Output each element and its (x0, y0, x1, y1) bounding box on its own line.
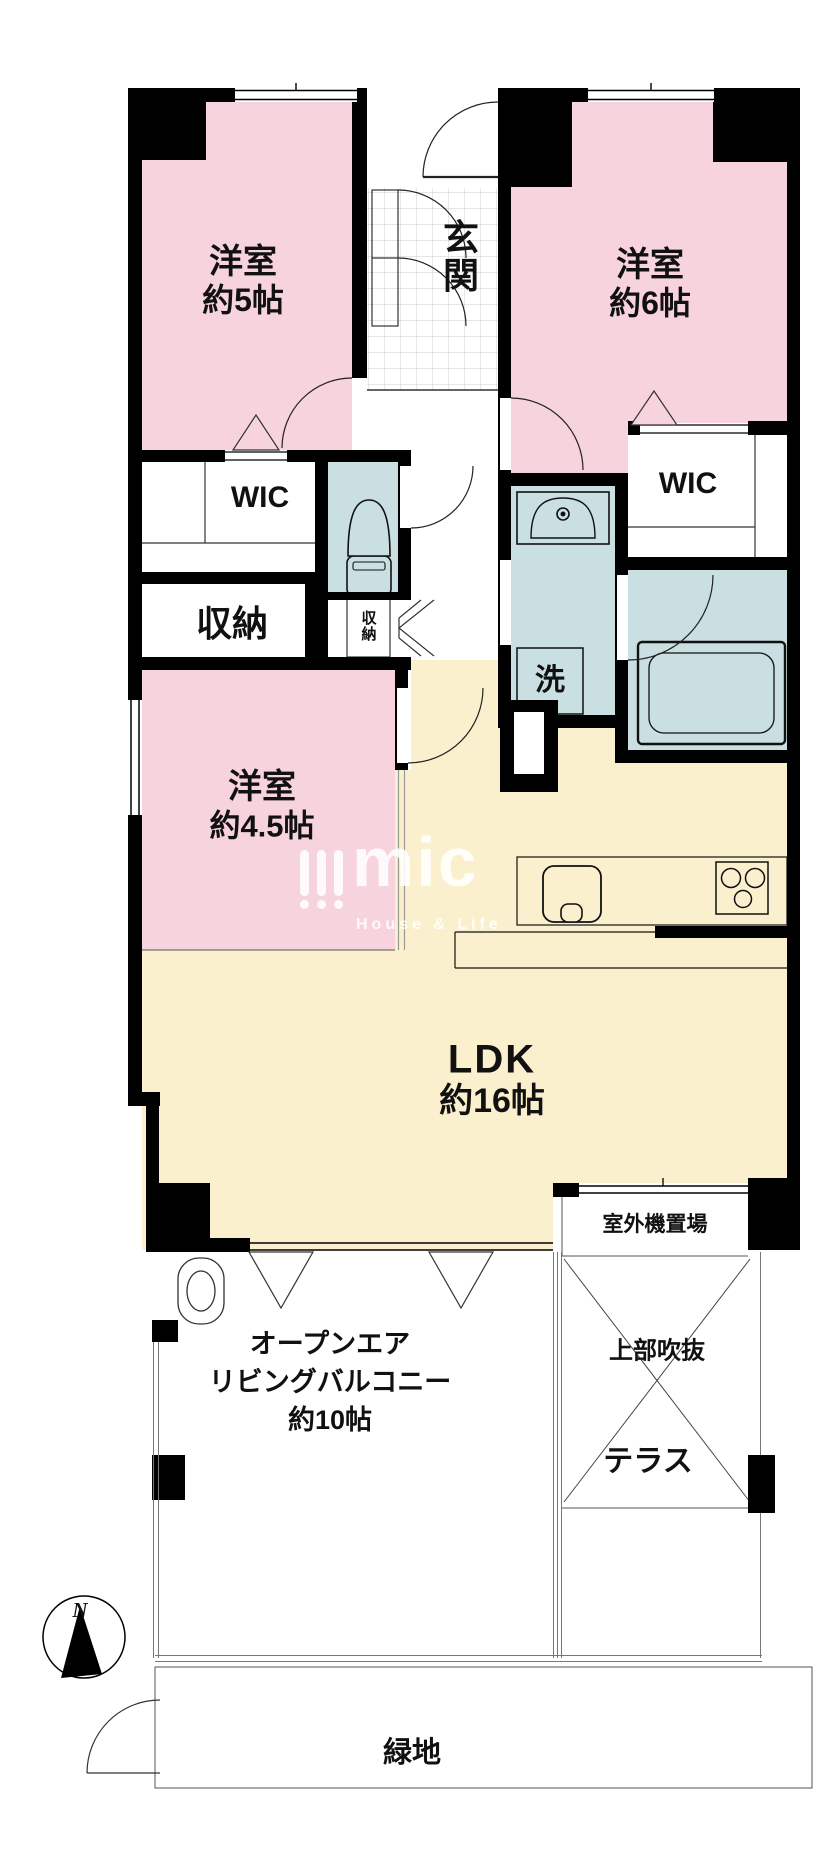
label-balcony-line3: 約10帖 (288, 1405, 372, 1435)
label-room6-name: 洋室 (616, 246, 684, 284)
window-room45 (128, 700, 142, 815)
label-laundry: 洗 (535, 664, 565, 698)
green-strip-outline (155, 1667, 812, 1788)
label-terrace: テラス (603, 1445, 692, 1479)
gate-door (87, 1700, 160, 1773)
window-room5 (235, 83, 357, 102)
window-balcony (249, 1243, 553, 1308)
label-room5-name: 洋室 (209, 243, 277, 281)
gap-stub-pillar (514, 712, 544, 774)
label-storage-hall: 収納 (361, 611, 377, 643)
label-room5-size: 約5帖 (202, 283, 284, 319)
door-gap-ldk (397, 688, 409, 763)
label-room6-size: 約6帖 (609, 286, 691, 322)
label-entrance: 玄関 (442, 219, 480, 295)
label-balcony-line1: オープンエア (250, 1329, 410, 1359)
outdoor-layer (43, 1197, 812, 1788)
label-ldk-size: 約16帖 (439, 1082, 545, 1120)
label-green-area: 緑地 (383, 1737, 441, 1769)
door-gap-room6 (500, 398, 511, 470)
label-room45-size: 約4.5帖 (209, 810, 314, 845)
label-balcony-line2: リビングバルコニー (209, 1367, 451, 1397)
door-arc-toilet (411, 466, 473, 528)
label-room45-name: 洋室 (228, 768, 296, 806)
door-gap-washroom (500, 560, 511, 645)
label-wic-left: WIC (231, 481, 289, 515)
toilet-icon (347, 500, 391, 596)
floorplan-drawing (0, 0, 830, 1875)
slop-sink-icon (178, 1258, 224, 1324)
floorplan-page: 洋室 約5帖 玄関 洋室 約6帖 WIC WIC 収納 収納 洗 洋室 約4.5… (0, 0, 830, 1875)
wic-left-fill (142, 462, 315, 572)
terrace-pillar (748, 1455, 775, 1513)
door-gap-bath (617, 575, 628, 660)
label-ldk-name: LDK (448, 1038, 536, 1083)
label-outdoor-unit: 室外機置場 (603, 1213, 708, 1237)
window-room6 (588, 83, 714, 102)
label-wic-right: WIC (659, 467, 717, 501)
door-gap-toilet (400, 466, 411, 528)
door-gap-room5 (352, 378, 367, 450)
label-upper-void: 上部吹抜 (609, 1339, 705, 1366)
label-compass-north: N (72, 1599, 87, 1623)
entry-door (423, 102, 498, 177)
label-storage-left: 収納 (196, 604, 268, 644)
